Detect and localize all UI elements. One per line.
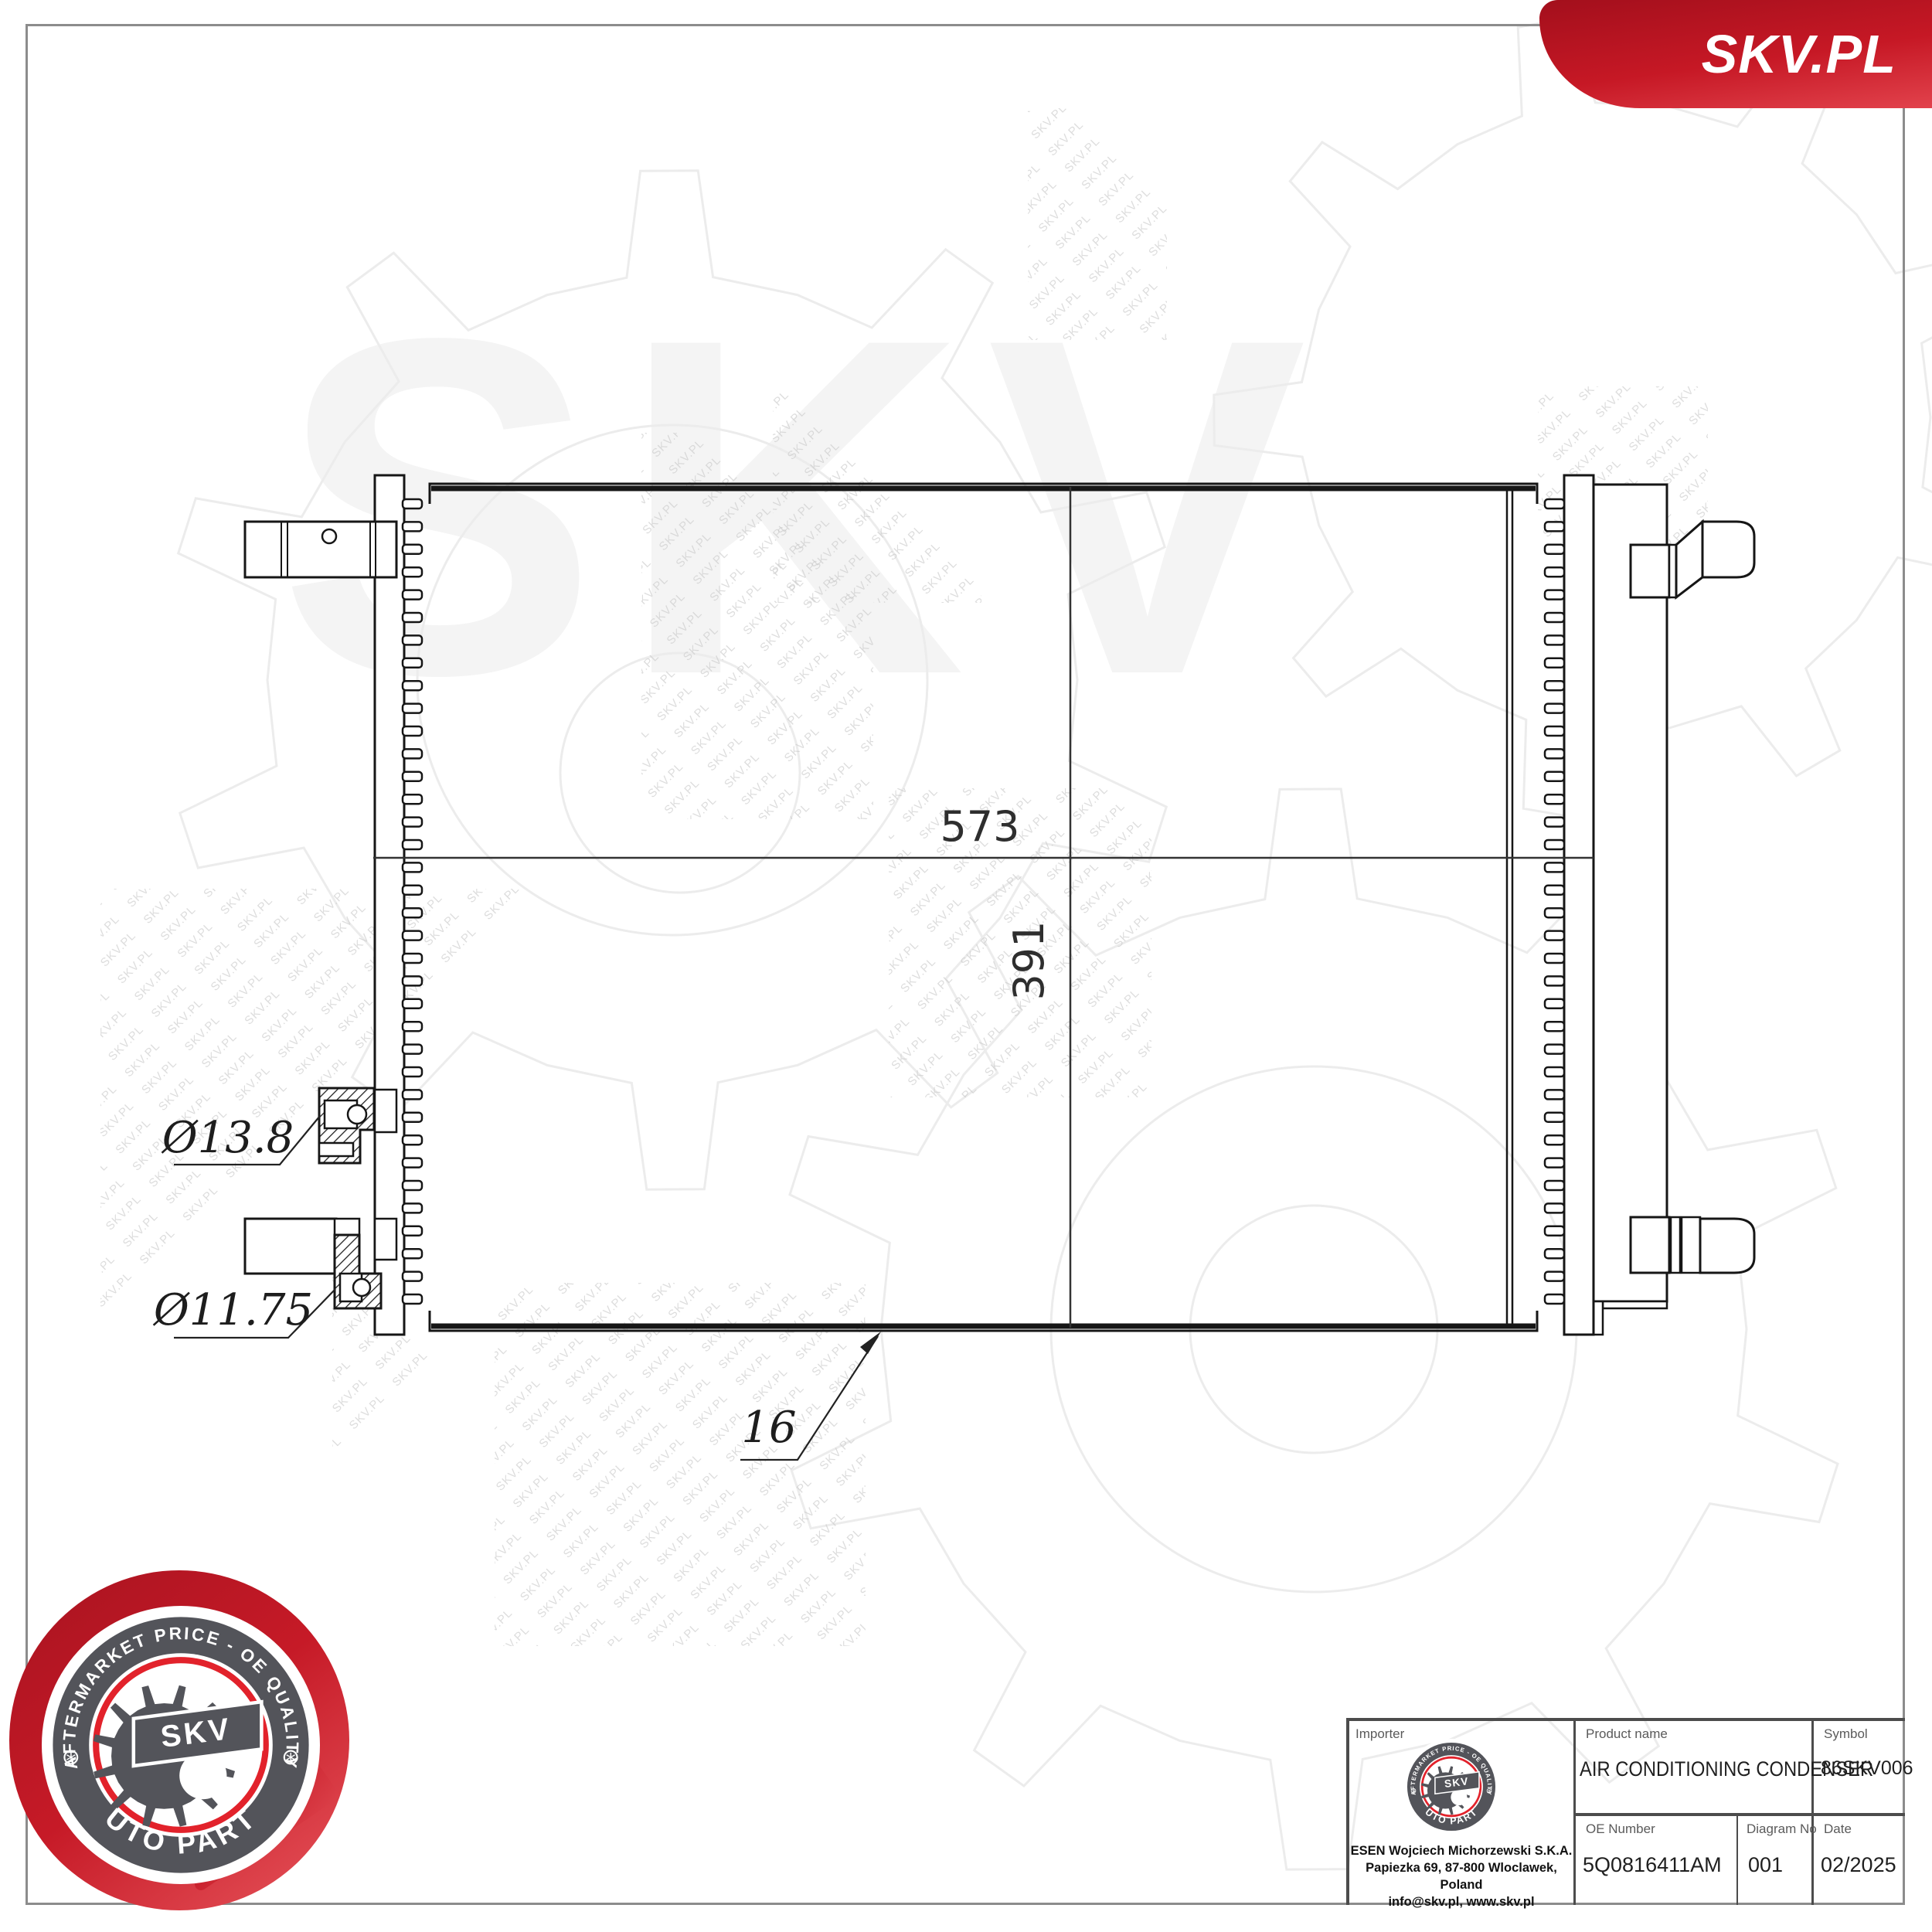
stamp-layer: SKV AFTERMARKET PRICE - OE QUALITY AUTO …	[0, 0, 1932, 1932]
titleblock-stamp	[1403, 1739, 1499, 1835]
diagram-sheet: SKV SKV.PL SKV.PL SKV.PL SKV.PL SKV.PL S…	[0, 0, 1932, 1932]
corner-stamp	[9, 1570, 349, 1910]
